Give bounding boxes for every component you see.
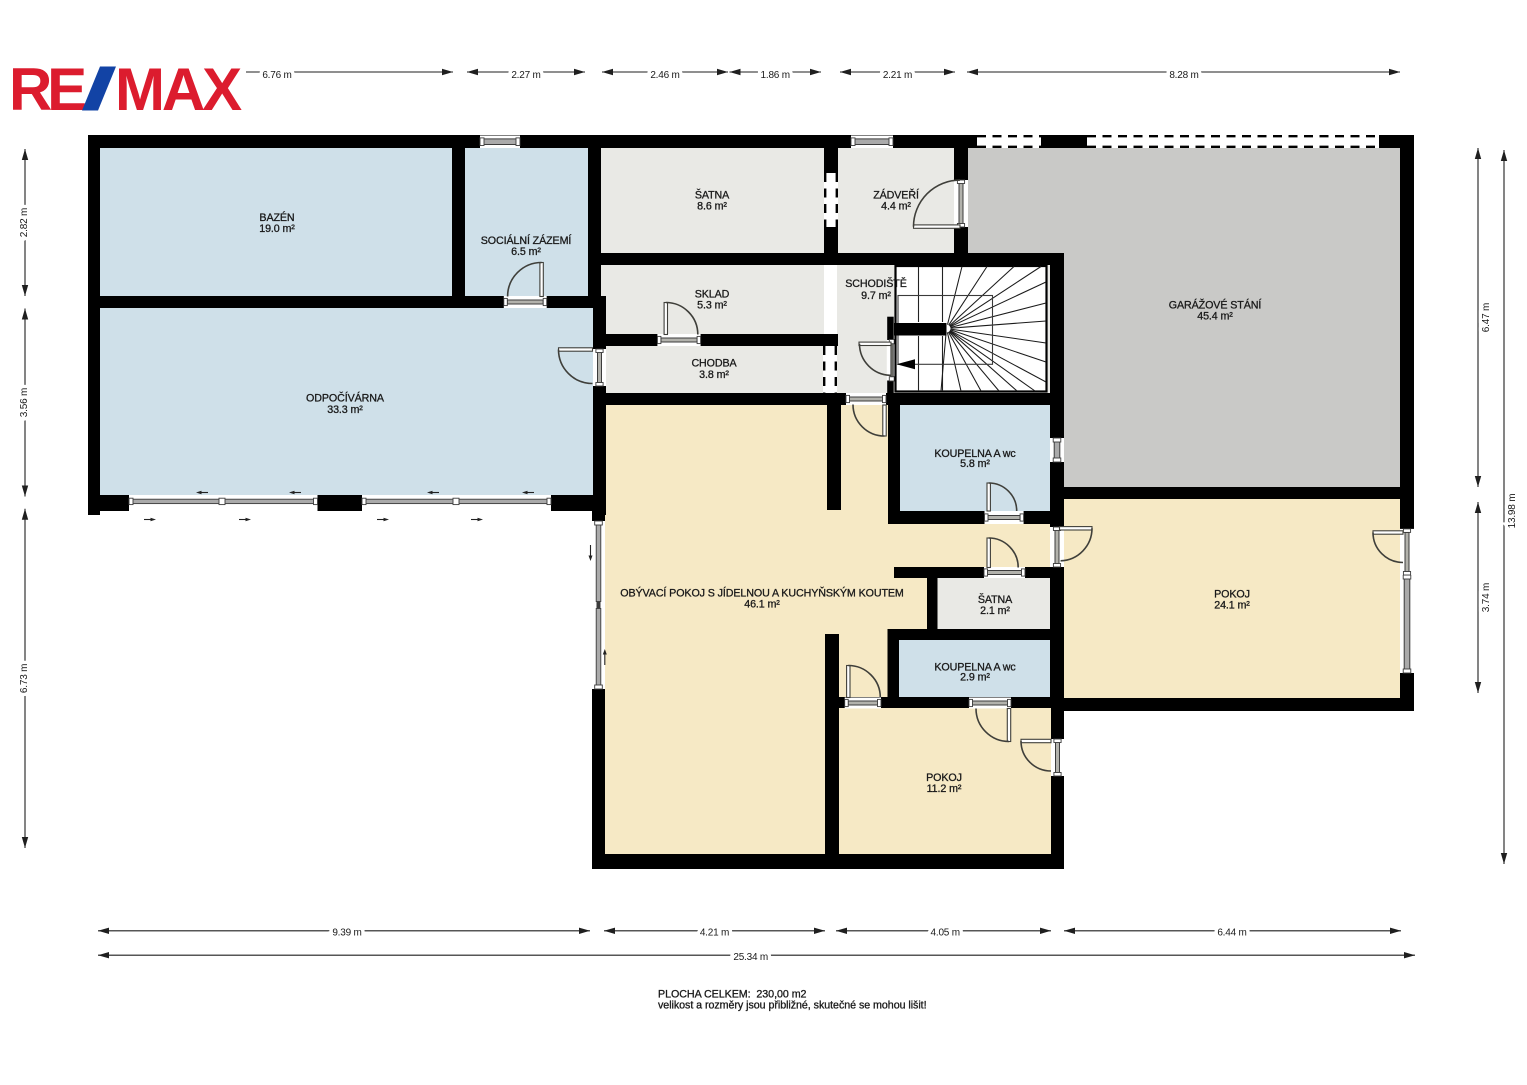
- svg-text:46.1 m²: 46.1 m²: [744, 599, 780, 611]
- svg-text:19.0 m²: 19.0 m²: [259, 223, 295, 235]
- svg-text:MAX: MAX: [115, 56, 242, 123]
- svg-text:4.21 m: 4.21 m: [700, 928, 729, 939]
- svg-text:3.74 m: 3.74 m: [1481, 583, 1492, 612]
- svg-text:CHODBA: CHODBA: [691, 358, 737, 370]
- svg-text:3.8 m²: 3.8 m²: [699, 369, 729, 381]
- svg-text:4.05 m: 4.05 m: [931, 928, 960, 939]
- svg-text:8.6 m²: 8.6 m²: [697, 201, 727, 213]
- svg-text:6.47 m: 6.47 m: [1481, 303, 1492, 332]
- svg-text:ODPOČÍVÁRNA: ODPOČÍVÁRNA: [306, 392, 385, 405]
- svg-text:6.73 m: 6.73 m: [19, 664, 30, 693]
- svg-text:5.8 m²: 5.8 m²: [960, 458, 990, 470]
- svg-text:6.76 m: 6.76 m: [262, 70, 291, 81]
- svg-text:6.44 m: 6.44 m: [1217, 928, 1246, 939]
- svg-text:33.3 m²: 33.3 m²: [327, 404, 363, 416]
- svg-text:2.1 m²: 2.1 m²: [980, 605, 1010, 617]
- svg-text:2.9 m²: 2.9 m²: [960, 672, 990, 684]
- svg-text:3.56 m: 3.56 m: [19, 388, 30, 417]
- svg-text:velikost a rozměry jsou přibli: velikost a rozměry jsou přibližné, skute…: [658, 1000, 927, 1012]
- svg-text:RE: RE: [9, 56, 85, 123]
- svg-text:SCHODIŠTĚ: SCHODIŠTĚ: [845, 277, 906, 290]
- svg-text:25.34 m: 25.34 m: [733, 952, 768, 963]
- svg-text:2.21 m: 2.21 m: [883, 70, 912, 81]
- svg-text:9.39 m: 9.39 m: [332, 928, 361, 939]
- svg-text:9.7 m²: 9.7 m²: [861, 290, 891, 302]
- svg-text:8.28 m: 8.28 m: [1169, 70, 1198, 81]
- svg-text:13.98 m: 13.98 m: [1507, 494, 1518, 529]
- svg-text:11.2 m²: 11.2 m²: [927, 783, 962, 795]
- svg-text:4.4 m²: 4.4 m²: [881, 201, 911, 213]
- svg-text:2.82 m: 2.82 m: [19, 208, 30, 237]
- svg-text:2.27 m: 2.27 m: [511, 70, 540, 81]
- svg-text:45.4 m²: 45.4 m²: [1197, 311, 1233, 323]
- svg-text:6.5 m²: 6.5 m²: [511, 246, 541, 258]
- svg-text:24.1 m²: 24.1 m²: [1214, 600, 1250, 612]
- svg-text:5.3 m²: 5.3 m²: [697, 300, 727, 312]
- svg-text:2.46 m: 2.46 m: [650, 70, 679, 81]
- svg-text:1.86 m: 1.86 m: [761, 70, 790, 81]
